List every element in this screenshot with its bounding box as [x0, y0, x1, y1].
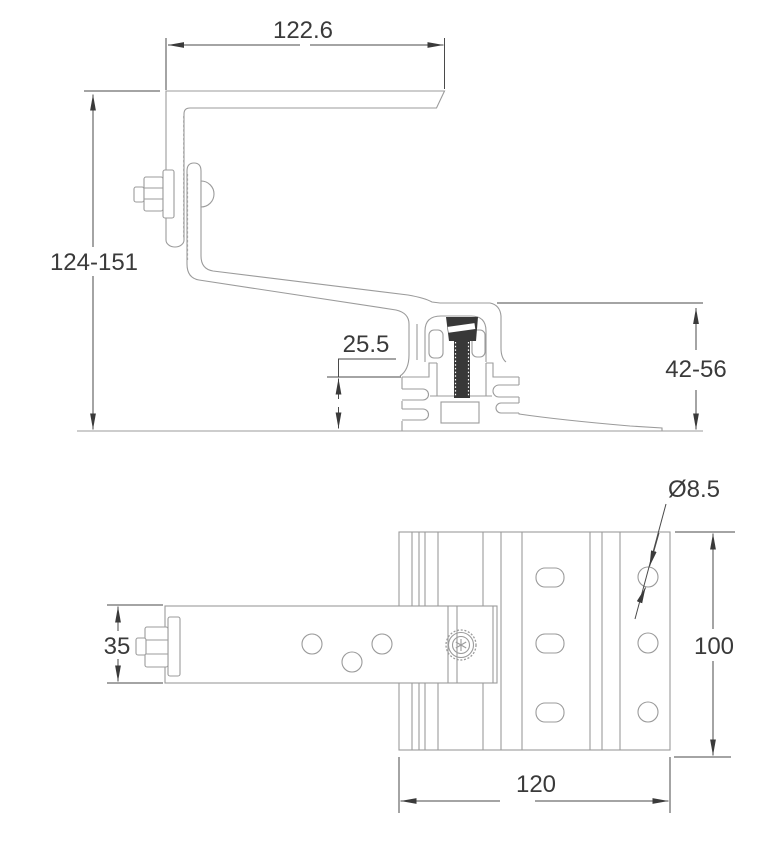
dim-label-top-width: 122.6	[273, 17, 333, 44]
hex-nut-icon	[144, 177, 163, 211]
dim-label-overall-height: 124-151	[50, 249, 138, 276]
dim-label-plate-length: 100	[694, 633, 734, 660]
arm-bolt-tip	[136, 638, 146, 655]
dim-label-rail-height: 42-56	[665, 356, 726, 383]
arm-body	[165, 606, 497, 683]
dim-label-plate-width: 120	[516, 771, 556, 798]
technical-drawing-page: 122.6 124-151 25.5 42-56	[0, 0, 776, 848]
bolt-thread-icon	[454, 341, 470, 398]
dim-label-arm-width: 35	[104, 633, 131, 660]
arm-hex-nut-icon	[145, 627, 168, 667]
roof-hook-technical-drawing: 122.6 124-151 25.5 42-56	[0, 0, 776, 848]
hook-arm	[136, 606, 497, 683]
dim-label-base-profile: 25.5	[343, 331, 390, 358]
washer	[163, 170, 174, 218]
dim-label-hole-diameter: Ø8.5	[668, 476, 720, 503]
arm-washer	[168, 617, 180, 676]
bolt-tip	[134, 187, 144, 202]
